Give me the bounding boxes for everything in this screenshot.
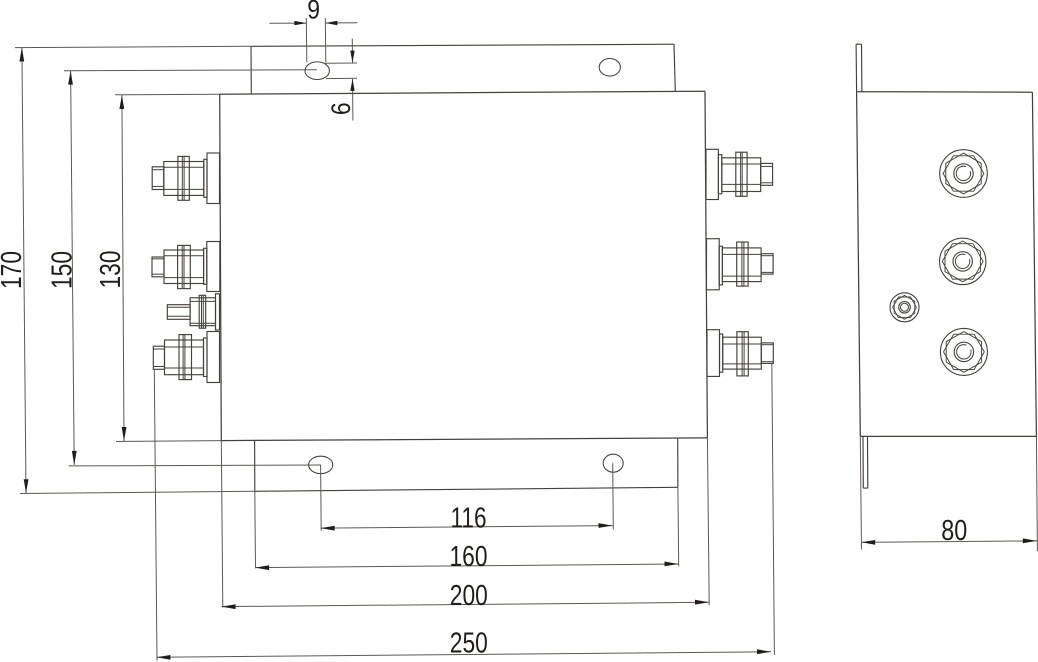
svg-text:130: 130 [95, 251, 127, 289]
svg-text:116: 116 [451, 502, 487, 534]
svg-text:150: 150 [47, 251, 79, 289]
svg-text:6: 6 [326, 102, 356, 115]
svg-text:200: 200 [450, 580, 488, 612]
svg-text:9: 9 [307, 0, 320, 25]
svg-text:80: 80 [941, 515, 967, 547]
svg-text:160: 160 [450, 541, 488, 573]
svg-text:170: 170 [0, 251, 28, 289]
svg-text:250: 250 [450, 628, 488, 660]
